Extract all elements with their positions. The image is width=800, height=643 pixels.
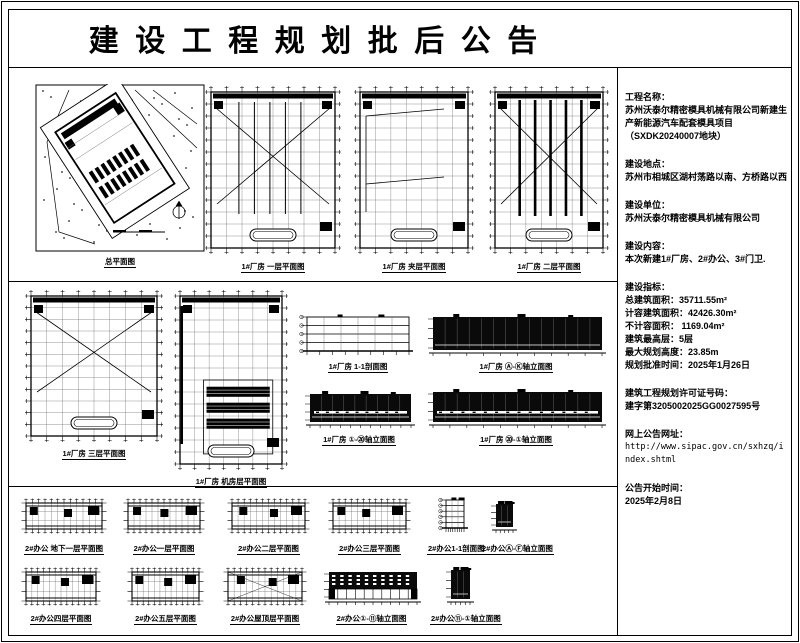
factory-machine-room-svg [171,287,291,473]
office-elevation-1-11 [320,566,423,609]
factory-floor3-plan [22,287,166,445]
location-label: 建设地点： [625,158,787,171]
office-floor5-svg [122,564,209,609]
office-section-svg [438,496,472,537]
row-divider-2 [8,486,617,487]
office-elevation-11-1-svg [442,564,476,609]
caption-factory-section: 1#厂房 1-1剖面图 [299,361,417,372]
permit-number: 建字第3205002025GG0027595号 [625,400,787,413]
caption-office-elevation-a-f: 2#办公Ⓐ-Ⓕ轴立面图 [481,543,541,554]
max-height: 最大规划高度：23.85m [625,346,787,359]
factory-elevation-1-20-svg [301,388,417,432]
office-floor1-svg [118,495,210,537]
content-section: 建设内容： 本次新建1#厂房、2#办公、3#门卫. [625,240,787,266]
website-section: 网上公告网址： http://www.sipac.gov.cn/sxhzq/in… [625,428,787,467]
office-floor4-plan [16,564,106,609]
office-roof-plan [218,564,312,609]
caption-office-elevation-11-1: 2#办公⑪-①轴立面图 [430,613,488,624]
start-date-value: 2025年2月8日 [625,495,787,508]
max-storeys: 建筑最高层：5层 [625,333,787,346]
announcement-url: http://www.sipac.gov.cn/sxhzq/index.shtm… [625,441,787,467]
office-floor2-svg [222,495,315,537]
info-panel: 工程名称： 苏州沃泰尔精密模具机械有限公司新建生 产新能源汽车配套模具项目 （S… [619,67,791,636]
permit-label: 建筑工程规划许可证号码： [625,387,787,400]
factory-section-svg [299,313,417,360]
caption-factory-floor1: 1#厂房 一层平面图 [202,261,344,272]
caption-office-elevation-1-11: 2#办公①-⑪轴立面图 [318,613,425,624]
location-section: 建设地点： 苏州市相城区湖村荡路以南、方桥路以西 [625,158,787,184]
caption-factory-elevation-20-1: 1#厂房 ⑳-①轴立面图 [424,434,608,445]
caption-factory-floor3: 1#厂房 三层平面图 [22,448,166,459]
factory-machine-room-plan [171,287,291,473]
start-date-label: 公告开始时间： [625,482,787,495]
caption-office-basement: 2#办公 地下一层平面图 [10,543,118,554]
factory-elevation-a-k [424,311,608,360]
row-divider-1 [8,281,617,282]
page-title: 建设工程规划批后公告 [72,16,554,60]
permit-section: 建筑工程规划许可证号码： 建字第3205002025GG0027595号 [625,387,787,413]
caption-site-plan: 总平面图 [35,256,205,267]
office-elevation-a-f [487,498,519,537]
caption-factory-machine-room: 1#厂房 机房层平面图 [171,476,291,487]
project-name-line: 苏州沃泰尔精密模具机械有限公司新建生 [625,104,787,117]
factory-section-drawing [299,313,417,360]
office-elevation-11-1 [442,564,476,609]
caption-office-floor4: 2#办公四层平面图 [12,613,110,624]
announcement-sheet: 建设工程规划批后公告 工程名称： 苏州沃泰尔精密模具机械有限公司新建生 产新能源… [0,0,800,643]
site-plan-svg [35,84,205,252]
office-floor1-plan [118,495,210,537]
office-floor3-svg [323,495,416,537]
factory-elevation-20-1-svg [424,386,608,432]
factory-floor3-svg [22,287,166,445]
office-roof-svg [218,564,312,609]
factory-floor1-svg [202,83,344,257]
office-basement-plan [16,495,112,537]
website-label: 网上公告网址： [625,428,787,441]
caption-office-section: 2#办公1-1剖面图 [427,543,483,554]
project-parcel-code: （SXDK20240007地块） [625,130,787,143]
factory-elevation-20-1 [424,386,608,432]
site-plan-drawing [35,84,205,252]
panel-divider [617,67,618,636]
project-name-section: 工程名称： 苏州沃泰尔精密模具机械有限公司新建生 产新能源汽车配套模具项目 （S… [625,91,787,143]
office-basement-svg [16,495,112,537]
builder-section: 建设单位： 苏州沃泰尔精密模具机械有限公司 [625,199,787,225]
caption-factory-mezzanine: 1#厂房 夹层平面图 [351,261,477,272]
project-name-line: 产新能源汽车配套模具项目 [625,117,787,130]
caption-office-floor5: 2#办公五层平面图 [118,613,213,624]
office-floor5-plan [122,564,209,609]
office-elevation-a-f-svg [487,498,519,537]
caption-factory-elevation-1-20: 1#厂房 ①-⑳轴立面图 [301,434,417,445]
office-elevation-1-11-svg [320,566,423,609]
counted-floor-area: 计容建筑面积：42426.30m² [625,307,787,320]
factory-mezzanine-plan [351,83,477,257]
location-value: 苏州市相城区湖村荡路以南、方桥路以西 [625,171,787,184]
title-bar: 建设工程规划批后公告 [8,9,618,67]
uncounted-floor-area: 不计容面积： 1169.04m² [625,320,787,333]
factory-elevation-1-20 [301,388,417,432]
indicators-section: 建设指标： 总建筑面积：35711.55m² 计容建筑面积：42426.30m²… [625,281,787,372]
total-floor-area: 总建筑面积：35711.55m² [625,294,787,307]
project-name-label: 工程名称： [625,91,787,104]
builder-value: 苏州沃泰尔精密模具机械有限公司 [625,212,787,225]
factory-floor2-plan [486,83,612,257]
caption-factory-elevation-a-k: 1#厂房 Ⓐ-Ⓚ轴立面图 [424,361,608,372]
approval-date: 规划批准时间：2025年1月26日 [625,359,787,372]
indicators-label: 建设指标： [625,281,787,294]
caption-office-floor2: 2#办公二层平面图 [216,543,321,554]
caption-factory-floor2: 1#厂房 二层平面图 [486,261,612,272]
content-value: 本次新建1#厂房、2#办公、3#门卫. [625,253,787,266]
caption-office-floor1: 2#办公一层平面图 [112,543,216,554]
factory-floor1-plan [202,83,344,257]
caption-office-roof: 2#办公屋顶层平面图 [214,613,316,624]
factory-floor2-svg [486,83,612,257]
start-date-section: 公告开始时间： 2025年2月8日 [625,482,787,508]
office-floor4-svg [16,564,106,609]
office-floor2-plan [222,495,315,537]
builder-label: 建设单位： [625,199,787,212]
office-floor3-plan [323,495,416,537]
factory-elevation-a-k-svg [424,311,608,360]
caption-office-floor3: 2#办公三层平面图 [317,543,422,554]
factory-mezzanine-svg [351,83,477,257]
office-section-drawing [438,496,472,537]
content-label: 建设内容： [625,240,787,253]
